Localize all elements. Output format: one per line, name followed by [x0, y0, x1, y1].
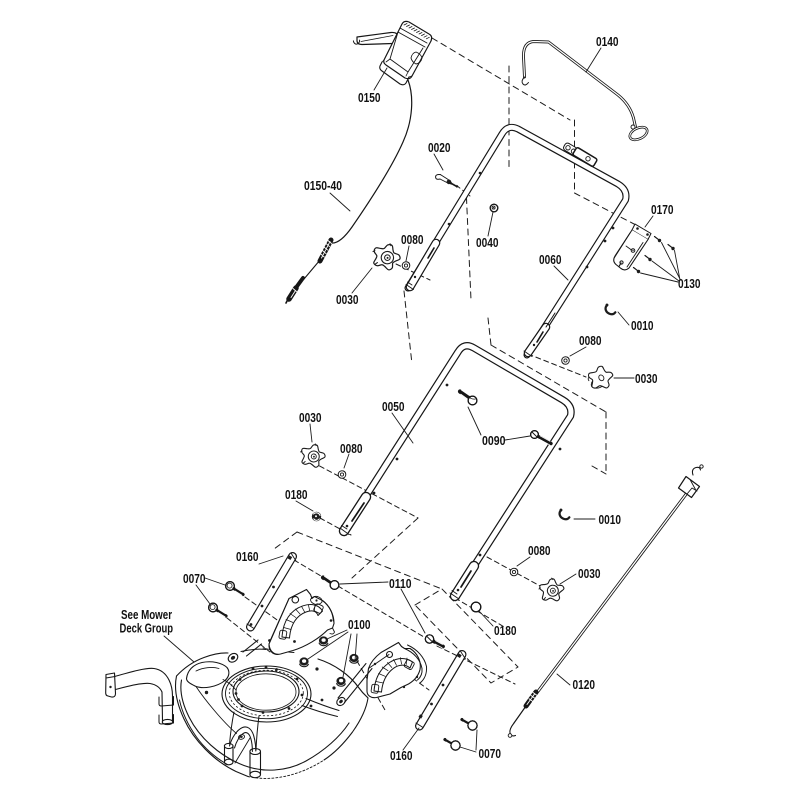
svg-text:0080: 0080 — [579, 334, 602, 348]
svg-text:0060: 0060 — [539, 253, 562, 267]
svg-text:0140: 0140 — [596, 35, 619, 49]
svg-text:0010: 0010 — [631, 319, 654, 333]
svg-text:0010: 0010 — [599, 513, 622, 527]
svg-text:0130: 0130 — [678, 277, 701, 291]
svg-text:0160: 0160 — [236, 550, 259, 564]
svg-text:0180: 0180 — [494, 624, 517, 638]
svg-text:0020: 0020 — [428, 141, 451, 155]
svg-text:0070: 0070 — [479, 747, 502, 761]
svg-text:0080: 0080 — [528, 544, 551, 558]
svg-text:0080: 0080 — [401, 233, 424, 247]
svg-text:0070: 0070 — [183, 572, 206, 586]
svg-text:0030: 0030 — [635, 372, 658, 386]
svg-text:0160: 0160 — [390, 749, 413, 763]
svg-text:See Mower: See Mower — [121, 608, 172, 622]
svg-text:0030: 0030 — [578, 567, 601, 581]
svg-text:0180: 0180 — [285, 488, 308, 502]
svg-text:0050: 0050 — [382, 400, 405, 414]
svg-text:0090: 0090 — [482, 434, 506, 448]
svg-text:0150-40: 0150-40 — [304, 179, 342, 193]
svg-text:0030: 0030 — [299, 411, 322, 425]
svg-text:0030: 0030 — [336, 293, 359, 307]
svg-text:0110: 0110 — [389, 577, 412, 591]
svg-text:0080: 0080 — [340, 442, 363, 456]
svg-text:0120: 0120 — [573, 678, 596, 692]
svg-text:0150: 0150 — [358, 91, 381, 105]
svg-text:0040: 0040 — [476, 236, 499, 250]
svg-text:0170: 0170 — [651, 203, 674, 217]
svg-text:Deck Group: Deck Group — [120, 622, 174, 636]
svg-text:0100: 0100 — [348, 618, 371, 632]
